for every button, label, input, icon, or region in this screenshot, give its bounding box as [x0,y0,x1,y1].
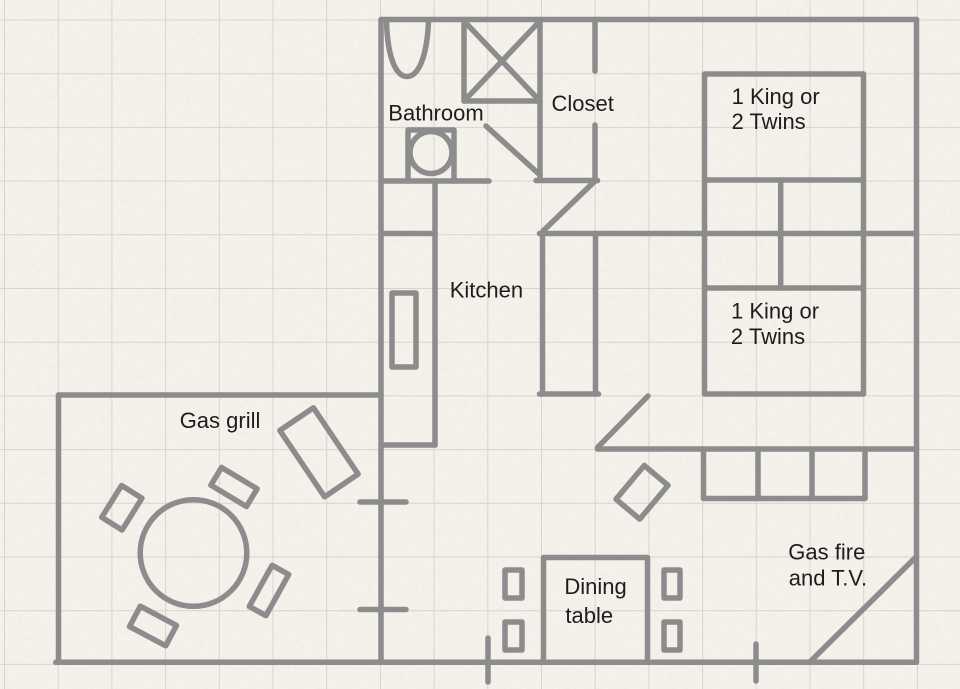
svg-text:2 Twins: 2 Twins [732,109,806,134]
svg-text:Gas grill: Gas grill [180,408,261,433]
svg-text:and T.V.: and T.V. [789,566,867,591]
svg-text:2 Twins: 2 Twins [731,324,805,349]
svg-text:Gas fire: Gas fire [788,539,865,564]
svg-text:Kitchen: Kitchen [450,278,523,303]
svg-text:Closet: Closet [552,91,614,116]
svg-text:Dining: Dining [564,574,626,599]
svg-text:Bathroom: Bathroom [388,100,483,125]
svg-text:1 King or: 1 King or [731,299,819,324]
svg-text:1 King or: 1 King or [732,84,820,109]
svg-text:table: table [565,603,613,628]
